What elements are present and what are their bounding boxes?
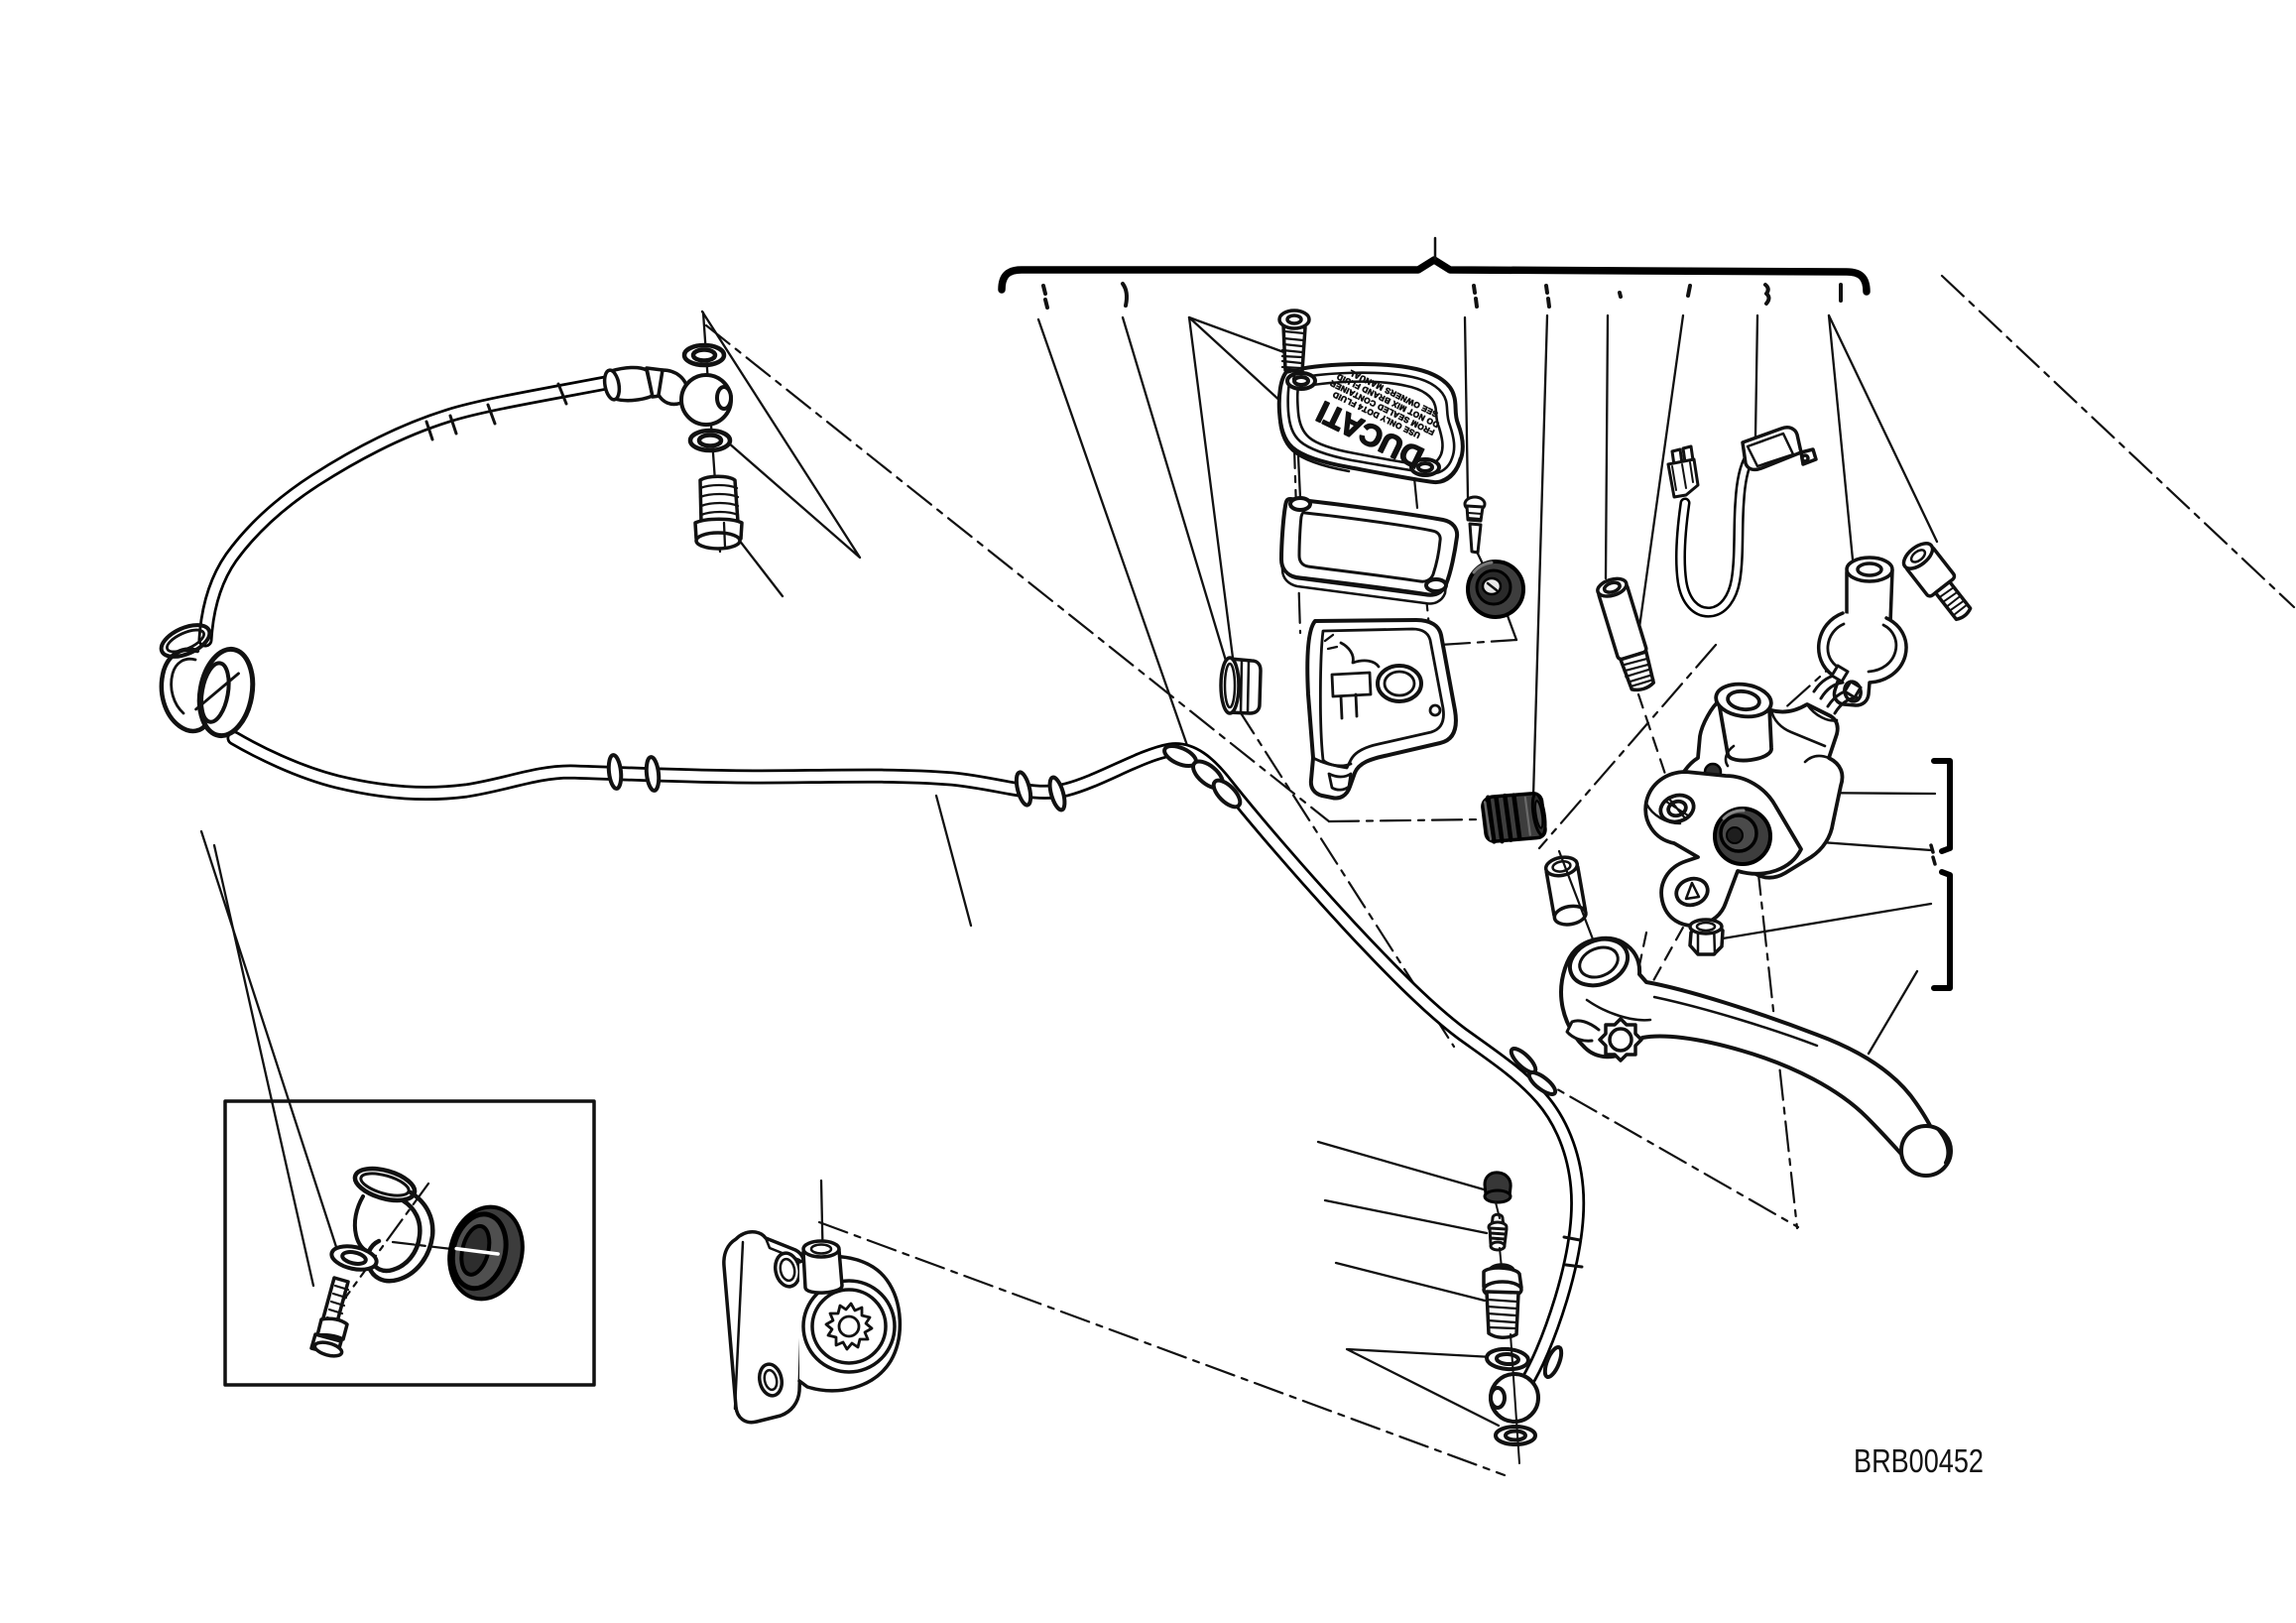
svg-text:BRB00452: BRB00452 [1854, 1442, 1984, 1479]
